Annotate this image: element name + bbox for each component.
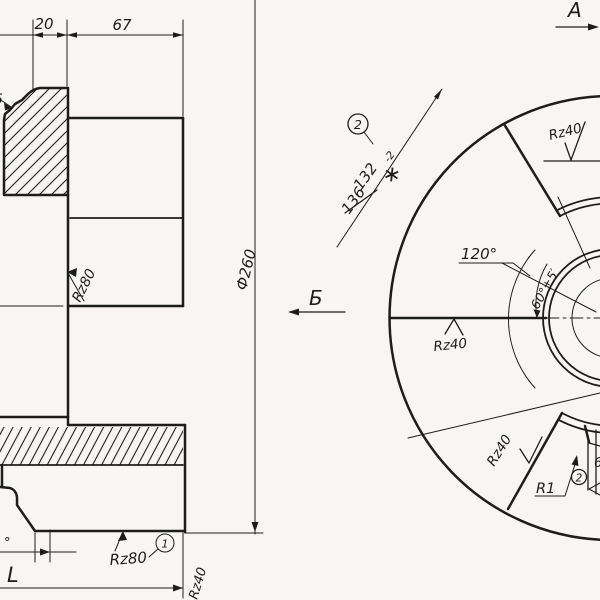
arrowhead bbox=[173, 32, 183, 38]
angle-120-label: 120° bbox=[461, 245, 497, 263]
view-label-a: A bbox=[566, 0, 582, 22]
angle-fragment-label: ° bbox=[4, 536, 11, 551]
edge-fragment-label: 6 bbox=[594, 456, 600, 471]
hatch-lower-rim bbox=[0, 427, 183, 465]
surface-finish-rz40-left: Rz40 bbox=[433, 336, 468, 355]
dim-67-label: 67 bbox=[112, 16, 132, 34]
right-end-view: 120° 60°±5′ 2 132 -2 ∗ 136 Rz40 Rz40 Rz4… bbox=[288, 0, 600, 540]
drawing-canvas: 20 67 5 Rz80 Ф260 ° L Rz80 1 Rz40 bbox=[0, 0, 600, 600]
arrowhead bbox=[252, 522, 259, 532]
surface-finish-rz40-bottom-right: Rz40 bbox=[484, 432, 515, 469]
arrowhead bbox=[288, 309, 299, 316]
jaw-profile bbox=[0, 465, 185, 531]
arrowhead bbox=[572, 455, 579, 466]
dim-120-underline bbox=[459, 263, 530, 276]
arrowhead bbox=[527, 250, 535, 259]
dim-20-label: 20 bbox=[34, 15, 53, 33]
ring-step-ledge-bottom bbox=[589, 443, 600, 446]
diameter-phi260-label: Ф260 bbox=[232, 247, 260, 292]
radial-line-lower bbox=[408, 393, 600, 438]
arrowhead bbox=[434, 89, 442, 100]
rz40-bottom-checkmark bbox=[520, 437, 542, 463]
radial-line-top-short bbox=[558, 197, 590, 268]
length-fragment-label: L bbox=[7, 563, 19, 587]
note-balloon-1-label: 1 bbox=[162, 538, 169, 551]
slot-dim-arrow bbox=[589, 483, 600, 495]
left-section-view: 20 67 5 Rz80 Ф260 ° L Rz80 1 Rz40 bbox=[0, 0, 263, 600]
dim-132-asterisk: ∗ bbox=[377, 160, 408, 190]
engineering-drawing-sheet: 20 67 5 Rz80 Ф260 ° L Rz80 1 Rz40 bbox=[0, 0, 600, 600]
view-label-b: Б bbox=[309, 286, 323, 310]
arrowhead bbox=[588, 24, 599, 31]
chamfer-label: 5 bbox=[0, 92, 3, 108]
arrowhead bbox=[57, 32, 67, 38]
rz80-lower-leader bbox=[115, 534, 122, 551]
ring-arc-bottom-outer bbox=[558, 420, 600, 433]
arrowhead bbox=[33, 32, 43, 38]
note-balloon-2-top-label: 2 bbox=[354, 117, 362, 132]
radius-r1-label: R1 bbox=[536, 481, 555, 497]
surface-finish-rz80-lower: Rz80 bbox=[109, 548, 148, 569]
surface-finish-rz40-bottom: Rz40 bbox=[186, 566, 210, 600]
arrowhead bbox=[40, 549, 50, 556]
note-balloon-2-bottom-label: 2 bbox=[576, 473, 583, 485]
balloon-2-tail bbox=[364, 132, 373, 144]
arrowhead bbox=[173, 585, 183, 592]
arrowhead bbox=[67, 32, 77, 38]
balloon-1-tail bbox=[149, 549, 158, 557]
rz40-left-checkmark bbox=[445, 319, 463, 335]
